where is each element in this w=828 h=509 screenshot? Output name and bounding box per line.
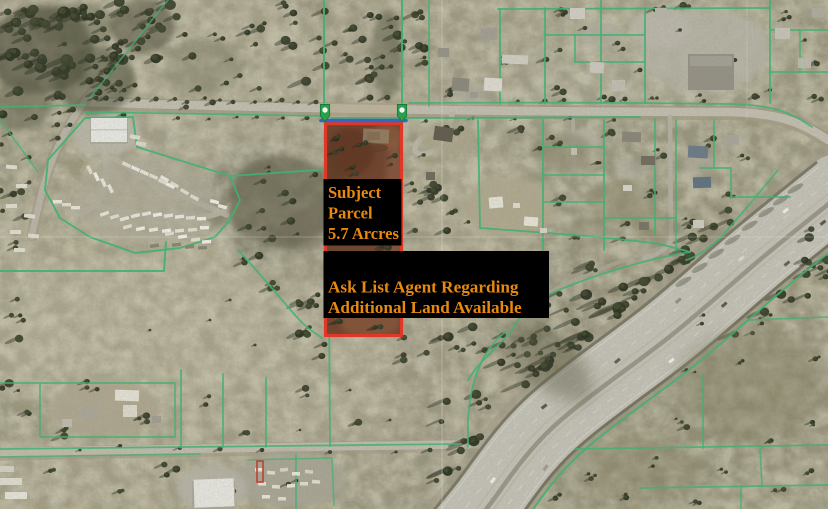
svg-text:Ask List Agent Regarding: Ask List Agent Regarding bbox=[328, 278, 519, 297]
svg-text:Additional Land Available: Additional Land Available bbox=[328, 298, 522, 317]
svg-text:Subject: Subject bbox=[328, 183, 382, 202]
svg-text:Parcel: Parcel bbox=[328, 204, 373, 223]
svg-text:5.7 Arcres: 5.7 Arcres bbox=[328, 224, 399, 243]
